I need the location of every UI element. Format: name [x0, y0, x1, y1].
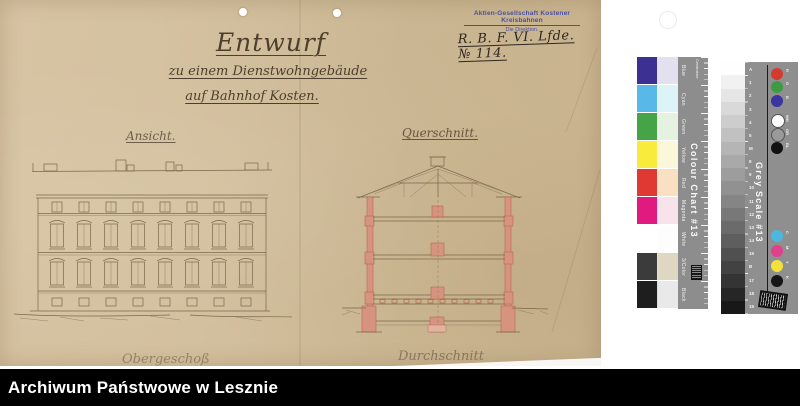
dot-label: Y [785, 261, 790, 264]
grey-step [721, 234, 745, 247]
dot-swatch [771, 275, 783, 287]
colour-chart-ruler: BlueCyanGreenYellowRedMagentaWhite3/Colo… [678, 57, 708, 309]
dot-swatch [771, 95, 783, 107]
colour-row-label: Cyan [678, 85, 688, 113]
colour-row-magenta [637, 197, 678, 225]
grey-dot-wh: WH [771, 114, 797, 127]
dot-label: R [785, 69, 790, 72]
grey-step [721, 208, 745, 221]
centimetre-label: Centimetre [695, 59, 700, 79]
grey-scale-chart: A12345M89101112131415B171819 RGBWHGRBL G… [721, 62, 798, 314]
dot-swatch [771, 81, 783, 93]
colour-swatch [637, 113, 658, 140]
grey-dot-c: C [771, 230, 797, 243]
cm-tick-marks-long [701, 57, 708, 309]
grey-step [721, 288, 745, 301]
colour-swatch [637, 141, 658, 168]
colour-row-green [637, 113, 678, 141]
colour-row-label: Black [678, 281, 688, 309]
colour-chart-title: Colour Chart #13 [689, 143, 699, 238]
colour-tint [658, 113, 678, 140]
grey-tick-label: 2 [749, 89, 754, 102]
colour-swatch [637, 57, 658, 84]
dot-label: B [785, 96, 790, 99]
archive-name: Archiwum Państwowe w Lesznie [8, 378, 278, 398]
grey-tick-label: 4 [749, 116, 754, 129]
grey-tick-label: B [749, 260, 754, 273]
grey-dot-bl: BL [771, 142, 797, 155]
colour-row-labels: BlueCyanGreenYellowRedMagentaWhite3/Colo… [678, 57, 688, 309]
grey-step [721, 155, 745, 168]
grey-scale-barcode [758, 290, 788, 311]
grey-dot-gr: GR [771, 128, 797, 141]
label-bottom-left-partial: Obergeschoß [122, 352, 210, 366]
dot-label: G [785, 82, 790, 85]
dot-label: K [785, 276, 790, 279]
colour-row-blue [637, 57, 678, 85]
grey-tick-label: M [749, 142, 754, 155]
grey-step [721, 128, 745, 141]
grey-dot-y: Y [771, 260, 797, 273]
grey-dot-g: G [771, 81, 797, 94]
grey-dot-r: R [771, 68, 797, 81]
colour-row-label: 3/Color [678, 253, 688, 281]
colour-tint [658, 197, 678, 224]
dot-swatch [771, 260, 783, 272]
dot-label: M [785, 246, 790, 249]
dot-swatch [771, 230, 783, 242]
colour-chart-barcode [691, 265, 702, 280]
grey-step [721, 221, 745, 234]
colour-row-label: Blue [678, 57, 688, 85]
colour-swatch [637, 281, 658, 308]
colour-row-white [637, 225, 678, 253]
grey-step [721, 62, 745, 75]
grey-step [721, 301, 745, 314]
colour-tint [658, 57, 678, 84]
strip-divider-line [767, 65, 768, 305]
grey-step [721, 89, 745, 102]
grey-tick-label: 1 [749, 76, 754, 89]
colour-swatch [637, 169, 658, 196]
colour-swatch [637, 197, 658, 224]
colour-swatch [637, 225, 658, 252]
grey-tick-label: 19 [749, 300, 754, 313]
drawing-subtitle-1: zu einem Dienstwohngebäude [146, 64, 390, 79]
grey-step [721, 195, 745, 208]
colour-swatch [637, 85, 658, 112]
label-elevation: Ansicht. [126, 129, 175, 143]
colour-chart: BlueCyanGreenYellowRedMagentaWhite3/Colo… [637, 57, 708, 309]
label-bottom-right-partial: Durchschnitt [398, 349, 484, 364]
drawing-title: Entwurf [208, 28, 334, 57]
colour-tint [658, 253, 678, 280]
grey-dot-k: K [771, 275, 797, 288]
dot-swatch [771, 128, 785, 142]
grey-dot-m: M [771, 245, 797, 258]
colour-row-3/color [637, 253, 678, 281]
colour-row-red [637, 169, 678, 197]
file-notation: R. B. F. VI. Lfde. № 114. [458, 28, 591, 63]
drawing-subtitle-2: auf Bahnhof Kosten. [160, 89, 344, 104]
colour-row-black [637, 281, 678, 309]
grey-scale-title: Grey Scale #13 [754, 162, 764, 243]
grey-tick-label: 17 [749, 274, 754, 287]
grey-scale-strip: A12345M89101112131415B171819 RGBWHGRBL G… [745, 62, 798, 314]
grey-tick-label: 5 [749, 129, 754, 142]
colour-patch-columns [637, 57, 678, 309]
grey-tick-marks [745, 62, 748, 314]
grey-step [721, 142, 745, 155]
grey-step [721, 248, 745, 261]
grey-dot-b: B [771, 95, 797, 108]
punch-hole [239, 8, 247, 16]
grey-tick-label: 3 [749, 102, 754, 115]
colour-tint [658, 281, 678, 308]
drawing-sheet: Aktien-Gesellschaft Kostener Kreisbahnen… [0, 0, 601, 366]
colour-tint [658, 85, 678, 112]
colour-row-cyan [637, 85, 678, 113]
scan-viewport: Aktien-Gesellschaft Kostener Kreisbahnen… [0, 0, 800, 406]
colour-row-yellow [637, 141, 678, 169]
faint-ring [659, 11, 677, 29]
grey-step [721, 75, 745, 88]
colour-row-label: Magenta [678, 197, 688, 225]
elevation-drawing [14, 160, 292, 321]
colour-tint [658, 169, 678, 196]
grey-tick-label: A [749, 63, 754, 76]
grey-step [721, 168, 745, 181]
grey-step [721, 261, 745, 274]
grey-step [721, 115, 745, 128]
colour-tint [658, 141, 678, 168]
grey-tick-label: 15 [749, 247, 754, 260]
colour-tint [658, 225, 678, 252]
grey-step [721, 274, 745, 287]
dot-swatch [771, 68, 783, 80]
grey-step-column [721, 62, 745, 314]
dot-label: WH [785, 115, 790, 122]
dot-label: C [785, 231, 790, 234]
colour-row-label: Yellow [678, 141, 688, 169]
punch-hole [333, 9, 341, 17]
section-drawing [342, 157, 548, 332]
footer-bar: Archiwum Państwowe w Lesznie [0, 369, 800, 406]
dot-swatch [771, 114, 785, 128]
colour-row-label: Red [678, 169, 688, 197]
dot-label: BL [785, 143, 790, 148]
colour-row-label: White [678, 225, 688, 253]
dot-swatch [771, 245, 783, 257]
colour-swatch [637, 253, 658, 280]
grey-tick-label: 18 [749, 287, 754, 300]
paper-creases [552, 48, 600, 332]
grey-step [721, 181, 745, 194]
label-section: Querschnitt. [402, 126, 478, 140]
dot-label: GR [785, 129, 790, 135]
stamp-line1: Aktien-Gesellschaft Kostener Kreisbahnen [464, 10, 580, 26]
grey-step [721, 102, 745, 115]
dot-swatch [771, 142, 783, 154]
colour-row-label: Green [678, 113, 688, 141]
